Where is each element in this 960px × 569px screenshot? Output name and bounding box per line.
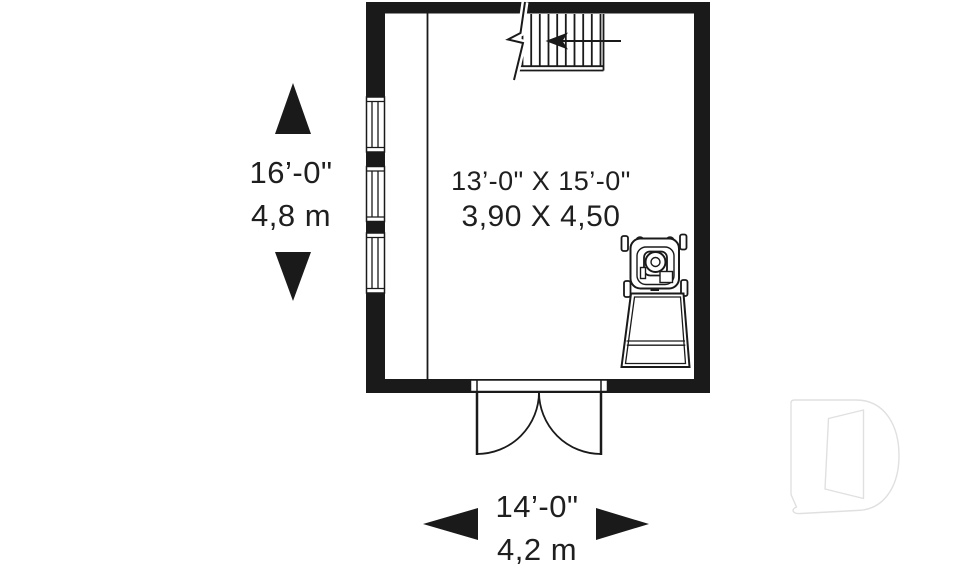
logo-outer-d-shape — [791, 400, 899, 514]
mower-deck-outer — [622, 294, 690, 368]
mower-part-left — [641, 268, 646, 279]
drummond-logo-watermark — [791, 400, 899, 514]
left-arrow-icon — [423, 508, 478, 540]
floor-plan-drawing: 13’-0" X 15’-0" 3,90 X 4,50 16’-0" 4,8 m… — [0, 0, 960, 569]
door-swing-arc-left — [477, 392, 539, 454]
mower-steering-hub — [651, 258, 660, 267]
logo-door-shape — [825, 410, 864, 499]
right-arrow-icon — [596, 508, 649, 540]
up-arrow-icon — [275, 83, 311, 134]
left-wall-windows — [367, 97, 385, 293]
mower-wheel-rear-left — [624, 281, 631, 297]
door-opening — [471, 380, 608, 392]
room-size-metric: 3,90 X 4,50 — [462, 200, 621, 233]
room-size-imperial: 13’-0" X 15’-0" — [451, 166, 631, 196]
window-1 — [367, 97, 385, 152]
vertical-dimension-metric: 4,8 m — [251, 198, 331, 233]
horizontal-dimension-imperial: 14’-0" — [496, 489, 579, 524]
horizontal-dimension: 14’-0" 4,2 m — [423, 489, 649, 567]
door-swing-arc-right — [539, 392, 601, 454]
window-3 — [367, 233, 385, 293]
window-2 — [367, 167, 385, 222]
staircase — [508, 2, 621, 80]
vertical-dimension: 16’-0" 4,8 m — [250, 83, 333, 301]
mower-hitch — [651, 288, 660, 292]
lawn-mower-symbol — [622, 235, 690, 368]
down-arrow-icon — [275, 252, 311, 301]
mower-wheel-front-right — [680, 235, 687, 250]
double-door — [471, 380, 608, 455]
vertical-dimension-imperial: 16’-0" — [250, 155, 333, 190]
mower-part-right — [660, 272, 673, 283]
horizontal-dimension-metric: 4,2 m — [497, 532, 577, 567]
floor-plan-canvas: 13’-0" X 15’-0" 3,90 X 4,50 16’-0" 4,8 m… — [0, 0, 960, 569]
mower-wheel-front-left — [622, 236, 629, 251]
